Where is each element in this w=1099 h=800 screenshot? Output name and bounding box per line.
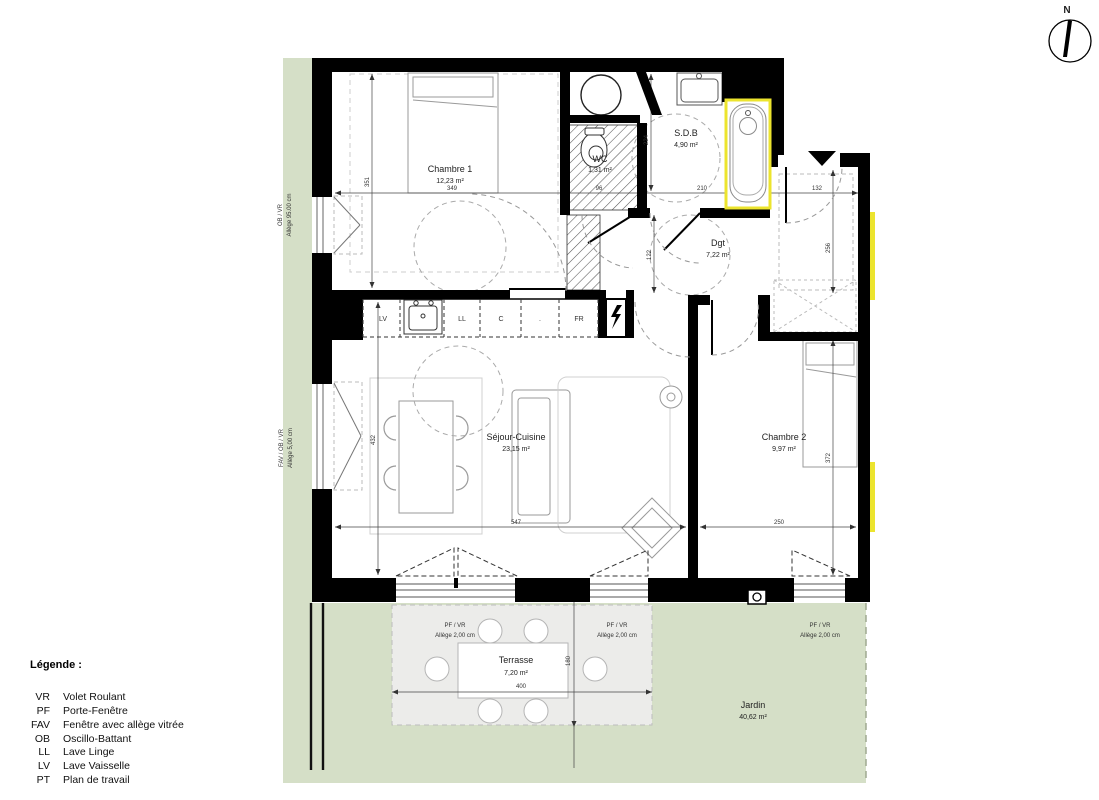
winlab-left-bottom-2: Allège 5,00 cm — [288, 428, 294, 468]
dim-wc-w: 96 — [596, 186, 603, 192]
dim-chambre1-w: 349 — [447, 186, 458, 192]
floor-plan-page: Chambre 1 12,23 m² WC 1,31 m² S.D.B 4,90… — [0, 0, 1099, 800]
legend: Légende : VR Volet Roulant PF Porte-Fenê… — [30, 659, 184, 786]
winlab-garden-1: PF / VR — [809, 623, 831, 629]
label-chambre1: Chambre 1 — [428, 164, 473, 174]
winlab-terrace-mid-1: PF / VR — [606, 623, 628, 629]
legend-label-ll: Lave Linge — [63, 746, 115, 758]
label-terrasse: Terrasse — [499, 655, 534, 665]
dim-entree-w: 132 — [812, 186, 823, 192]
legend-label-vr: Volet Roulant — [63, 691, 126, 703]
area-sejour: 23,15 m² — [502, 446, 530, 453]
dim-sdb-h: 224 — [644, 134, 650, 145]
wall-vent — [748, 590, 766, 604]
washbasin — [677, 73, 722, 105]
winlab-terrace-left-2: Allège 2,00 cm — [435, 633, 475, 639]
winlab-terrace-mid-2: Allège 2,00 cm — [597, 633, 637, 639]
label-sejour: Séjour-Cuisine — [486, 432, 545, 442]
area-chambre2: 9,97 m² — [772, 446, 796, 453]
legend-abbr-pt: PT — [37, 774, 51, 786]
electrical-panel — [606, 299, 626, 337]
area-wc: 1,31 m² — [588, 167, 612, 174]
legend-label-ob: Oscillo-Battant — [63, 733, 131, 745]
area-dgt: 7,22 m² — [706, 252, 730, 259]
legend-abbr-vr: VR — [35, 691, 50, 703]
legend-label-fav: Fenêtre avec allège vitrée — [63, 719, 184, 731]
label-ll: LL — [458, 316, 466, 323]
legend-abbr-ob: OB — [35, 733, 50, 745]
dim-terrasse-h: 180 — [566, 655, 572, 666]
legend-abbr-pf: PF — [37, 705, 50, 717]
area-jardin: 40,62 m² — [739, 714, 767, 721]
floor-plan-drawing: Chambre 1 12,23 m² WC 1,31 m² S.D.B 4,90… — [0, 0, 1099, 800]
dim-sdb-w: 210 — [697, 186, 708, 192]
label-lv: LV — [379, 316, 387, 323]
legend-label-pf: Porte-Fenêtre — [63, 705, 128, 717]
facade-highlight-2 — [870, 462, 875, 532]
legend-title: Légende : — [30, 659, 82, 671]
dim-chambre2-w: 250 — [774, 520, 785, 526]
label-c: C — [498, 316, 503, 323]
label-fr: FR — [574, 316, 583, 323]
sofa — [512, 390, 570, 523]
dim-chambre1-h: 351 — [365, 176, 371, 187]
legend-label-lv: Lave Vaisselle — [63, 760, 130, 772]
dining-table — [399, 401, 453, 513]
dim-chambre2-h: 372 — [826, 452, 832, 463]
dim-sejour-w: 547 — [511, 520, 522, 526]
winlab-left-top-1: OB / VR — [278, 203, 284, 226]
water-heater — [581, 75, 621, 115]
bathtub — [726, 100, 770, 208]
winlab-terrace-left-1: PF / VR — [444, 623, 466, 629]
dim-sejour-h: 432 — [371, 434, 377, 445]
bed-chambre1 — [408, 73, 498, 193]
area-chambre1: 12,23 m² — [436, 178, 464, 185]
label-dgt: Dgt — [711, 238, 726, 248]
compass-north-label: N — [1063, 5, 1070, 16]
dim-dgt-h: 122 — [647, 249, 653, 260]
legend-rows: VR Volet Roulant PF Porte-Fenêtre FAV Fe… — [31, 691, 184, 786]
winlab-left-bottom-1: FAV / OB / VR — [279, 428, 285, 467]
winlab-left-top-2: Allège 95.00 cm — [287, 193, 293, 236]
label-jardin: Jardin — [741, 700, 766, 710]
dim-terrasse-w: 400 — [516, 684, 527, 690]
legend-abbr-ll: LL — [38, 746, 50, 758]
floor-lamp — [660, 386, 682, 408]
label-chambre2: Chambre 2 — [762, 432, 807, 442]
legend-abbr-fav: FAV — [31, 719, 50, 731]
dim-entree-h: 256 — [826, 242, 832, 253]
facade-highlight-1 — [870, 212, 875, 300]
area-sdb: 4,90 m² — [674, 142, 698, 149]
label-sdb: S.D.B — [674, 128, 698, 138]
kitchen-sink — [404, 300, 442, 334]
winlab-garden-2: Allège 2,00 cm — [800, 633, 840, 639]
legend-abbr-lv: LV — [38, 760, 50, 772]
legend-label-pt: Plan de travail — [63, 774, 130, 786]
label-wc: WC — [593, 154, 608, 164]
north-compass: N — [1049, 5, 1091, 62]
label-dot: . — [539, 316, 541, 323]
area-terrasse: 7,20 m² — [504, 670, 528, 677]
bed-chambre2 — [803, 340, 857, 467]
